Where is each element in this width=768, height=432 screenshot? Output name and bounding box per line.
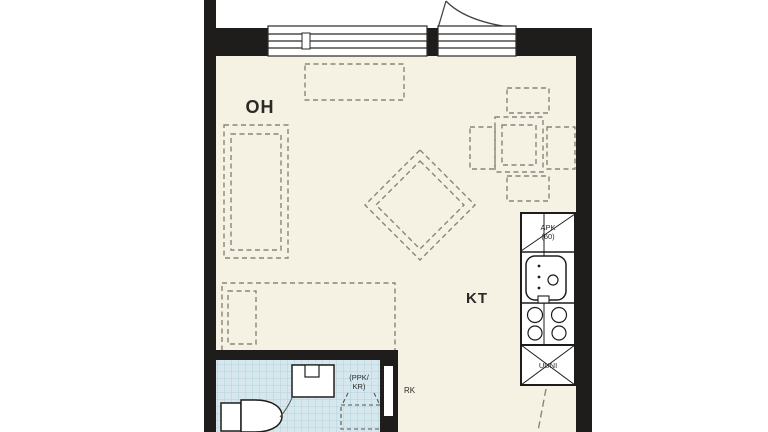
laundry-label-line2: KR) bbox=[353, 382, 366, 391]
bathroom-sink-icon bbox=[292, 365, 334, 397]
dishwasher-label-line2: (60) bbox=[541, 232, 555, 241]
kitchen-sink-icon bbox=[526, 256, 566, 303]
laundry-label-line1: (PPK/ bbox=[349, 373, 370, 382]
wall-left bbox=[204, 0, 216, 432]
wall-top-left bbox=[204, 28, 268, 56]
living-room-label: OH bbox=[246, 97, 275, 117]
dishwasher-label-line1: APK bbox=[540, 223, 555, 232]
window-large bbox=[268, 26, 427, 56]
bathroom-door-slot bbox=[384, 366, 393, 416]
wall-window-mullion bbox=[427, 28, 438, 56]
floor-plan-canvas: (PPK/ KR) APK (60) bbox=[0, 0, 768, 432]
electrical-panel-label: RK bbox=[404, 386, 416, 395]
toilet-icon bbox=[221, 400, 282, 432]
kitchen-label: KT bbox=[466, 290, 488, 307]
bathroom: (PPK/ KR) bbox=[216, 358, 383, 432]
oven-cabinet-icon: UUNI bbox=[521, 345, 575, 385]
kitchen-counter: APK (60) UUNI bbox=[521, 213, 575, 385]
windows bbox=[268, 26, 516, 56]
oven-label: UUNI bbox=[539, 361, 557, 370]
floor-plan-svg: (PPK/ KR) APK (60) bbox=[0, 0, 768, 432]
wall-bathroom-top bbox=[216, 350, 382, 360]
window-small bbox=[438, 26, 516, 56]
wall-right bbox=[576, 28, 592, 432]
balcony-door-swing bbox=[438, 1, 516, 28]
